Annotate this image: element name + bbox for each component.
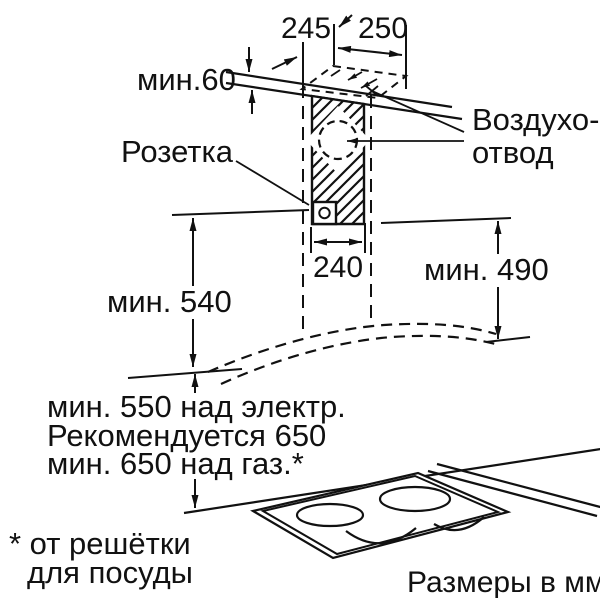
dim-540-value: мин. 540 [104,286,235,319]
clearance-line-gas: мин. 650 над газ.* [47,450,346,479]
hood-installation-diagram: 245 250 мин.60 Розетка Воздухо- отвод 24… [0,0,600,600]
dim-245-lines [272,42,303,98]
dim-250-value: 250 [358,13,408,45]
air-outlet-label-line2: отвод [472,137,599,170]
hob-outer-rim [253,473,508,558]
burner-right [380,487,450,511]
dim-245-value: 245 [281,13,331,45]
burner-left [297,504,363,526]
units-note: Размеры в мм [407,567,600,599]
footnote-line2: для посуды [27,557,193,590]
dim-240-lines [311,223,365,253]
canopy-outline [208,324,499,384]
clearance-text-block: мин. 550 над электр. Рекомендуется 650 м… [44,393,349,479]
air-outlet-label: Воздухо- отвод [472,104,599,169]
dim-min60-value: мин.60 [137,64,236,97]
min60-arrows [249,47,252,114]
air-outlet-label-line1: Воздухо- [472,104,599,137]
dim-240-value: 240 [313,252,363,284]
diagram-linework [0,0,600,600]
socket-label: Розетка [121,136,233,169]
air-outlet-top-view [302,66,406,98]
dim-490-value: мин. 490 [421,254,552,287]
